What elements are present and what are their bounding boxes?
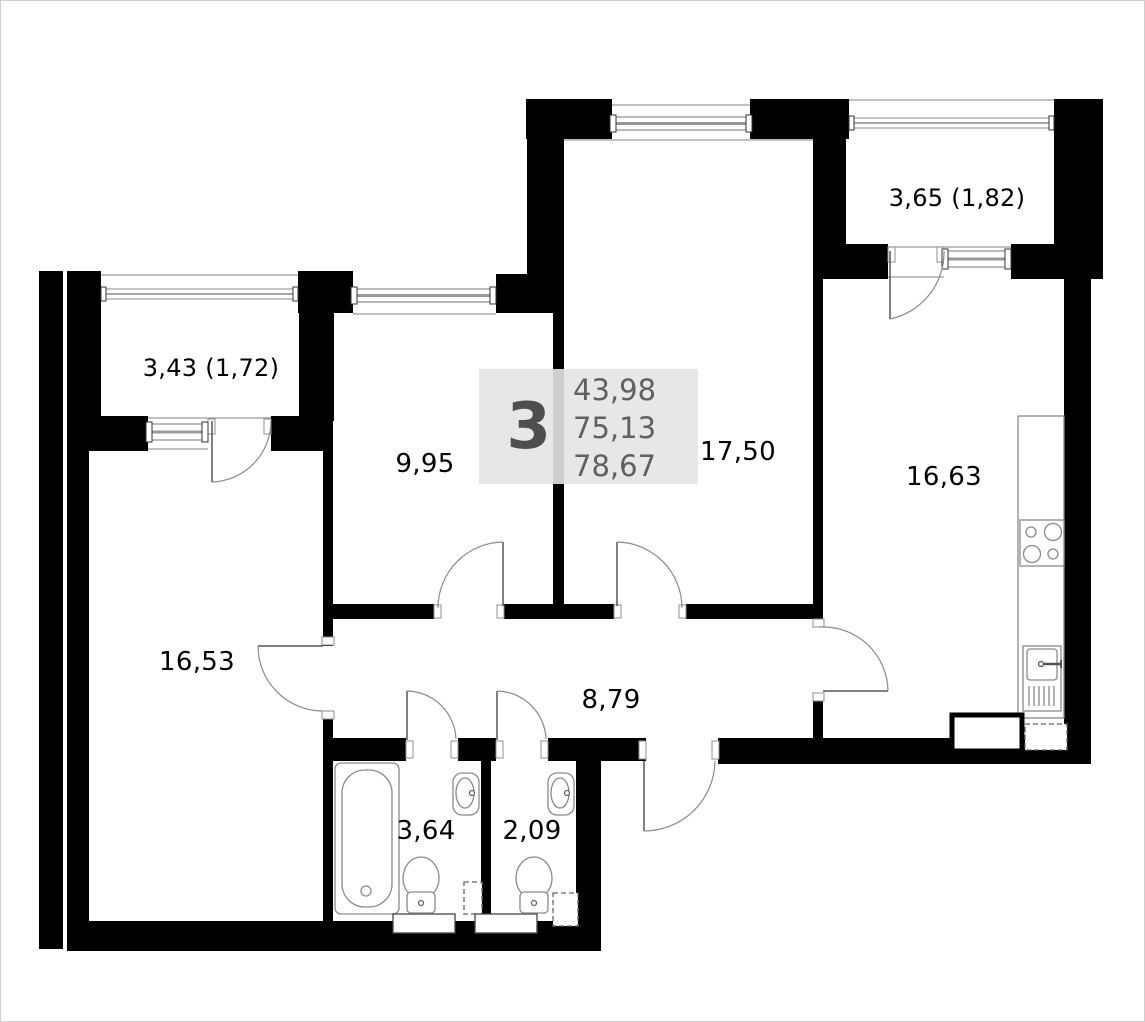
door-arc-kitchen [819,627,888,691]
door-arc-bathroom [407,691,456,739]
bathtub [335,763,399,914]
room-label-bathroom: 3,64 [396,816,455,846]
walls [39,99,1103,951]
door-arc-balcony-right [890,251,944,319]
unit-areas: 43,98 75,13 78,67 [573,371,656,485]
room-label-hallway: 8,79 [581,685,640,715]
kitchen-sink [1023,646,1061,711]
ventilation-shaft [952,715,1022,751]
railing-balcony-right [849,116,1054,130]
door-arc-living-room [617,542,682,608]
room-label-room-middle: 9,95 [395,449,454,479]
unit-info-badge: 3 43,98 75,13 78,67 [479,369,698,484]
stove [1020,520,1064,566]
window-living-room [610,115,752,132]
fixtures [335,416,1067,933]
door-arc-wc [497,691,546,739]
room-label-wc: 2,09 [502,816,561,846]
washbasin-bathroom [453,773,479,815]
duct-kitchen [1025,724,1067,750]
door-arc-room-middle [438,542,503,608]
floor-plan: 3,65 (1,82) 3,43 (1,72) 9,95 17,50 16,63… [0,0,1145,1022]
window-balcony-right [942,249,1011,269]
unit-area-main: 75,13 [573,409,656,447]
door-arc-room-left [258,646,323,711]
room-label-room-left: 16,53 [159,647,235,677]
door-arc-balcony-left [212,421,271,482]
unit-area-total: 78,67 [573,447,656,485]
duct-bathroom [464,882,482,914]
toilet-bathroom [393,857,455,933]
window-room-middle [351,287,496,304]
window-balcony-left [146,422,208,442]
washbasin-wc [548,773,574,815]
room-label-living-room: 17,50 [700,437,776,467]
unit-area-living: 43,98 [573,371,656,409]
duct-wc [553,893,578,926]
room-label-kitchen: 16,63 [906,462,982,492]
room-label-balcony-left: 3,43 (1,72) [143,354,280,382]
floor-plan-drawing [1,1,1144,1021]
door-arc-entry [644,761,715,831]
railing-balcony-left [101,287,298,301]
unit-rooms-count: 3 [479,395,551,459]
room-label-balcony-right: 3,65 (1,82) [889,184,1026,212]
